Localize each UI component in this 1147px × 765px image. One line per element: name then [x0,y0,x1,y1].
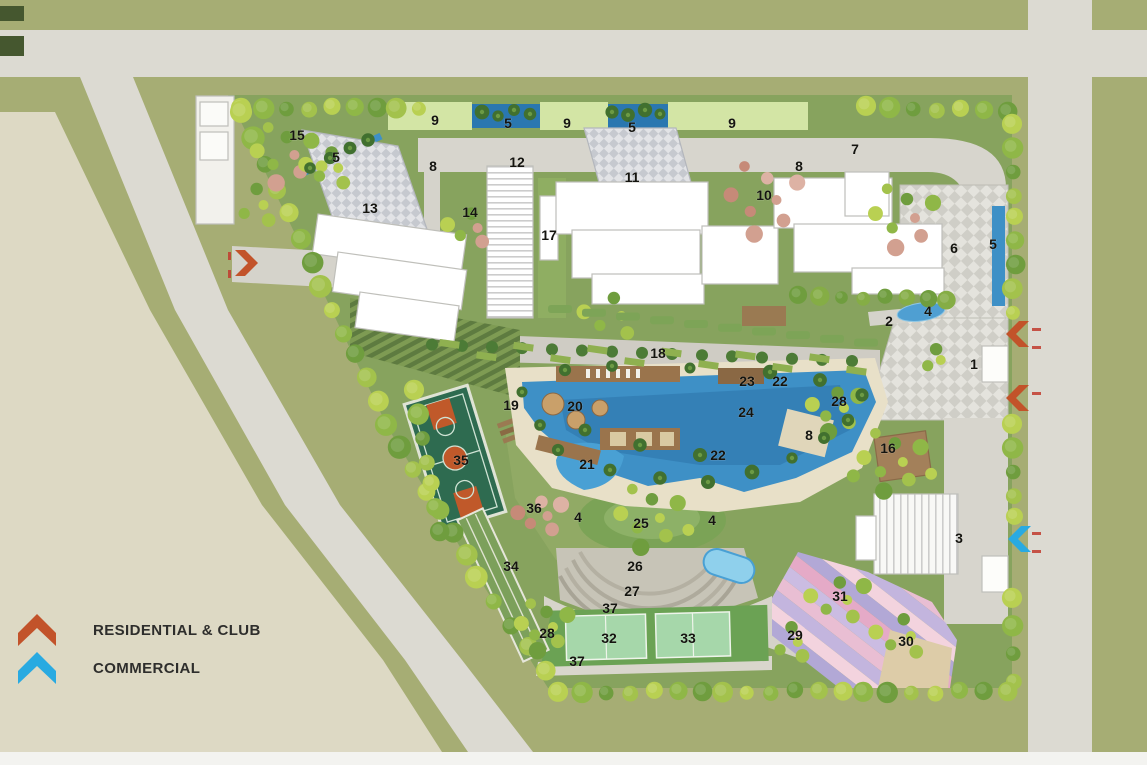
building-3 [874,494,958,574]
top-road [0,30,1147,77]
marker-33: 33 [680,630,696,646]
gatehouse [200,102,228,126]
marker-10: 10 [756,187,772,203]
planting-bed [0,36,24,56]
palm-tree [636,347,648,359]
marker-35: 35 [453,452,469,468]
marker-8: 8 [805,427,813,443]
palm-tree [486,341,498,353]
marker-18: 18 [650,345,666,361]
marker-19: 19 [503,397,519,413]
marker-15: 15 [289,127,305,143]
marker-14: 14 [462,204,478,220]
palm-tree [576,345,588,357]
gatehouse-east-1 [982,346,1008,382]
marker-29: 29 [787,627,803,643]
marker-4: 4 [708,512,716,528]
marker-37: 37 [569,653,585,669]
marker-5: 5 [628,119,636,135]
marker-12: 12 [509,154,525,170]
marker-32: 32 [601,630,617,646]
float-island [542,393,564,415]
marker-20: 20 [567,398,583,414]
residential-chevron-icon [18,614,56,646]
lawn-strip [668,102,808,130]
marker-22: 22 [710,447,726,463]
marker-8: 8 [429,158,437,174]
lawn-strip [540,102,608,130]
page-margin [0,752,1147,765]
building-3-wing [856,516,876,560]
marker-13: 13 [362,200,378,216]
marker-7: 7 [851,141,859,157]
marker-4: 4 [924,303,932,319]
marker-2: 2 [885,313,893,329]
gatehouse-east-2 [982,556,1008,592]
marker-25: 25 [633,515,649,531]
marker-16: 16 [880,440,896,456]
marker-5: 5 [989,236,997,252]
legend: RESIDENTIAL & CLUB COMMERCIAL [18,612,261,688]
palm-tree [546,343,558,355]
marker-9: 9 [728,115,736,131]
marker-22: 22 [772,373,788,389]
site-plan: 1234445555678889991011121314151617181920… [0,0,1147,765]
deck-mat [660,432,674,446]
marker-26: 26 [627,558,643,574]
marker-9: 9 [431,112,439,128]
marker-28: 28 [831,393,847,409]
marker-3: 3 [955,530,963,546]
legend-item-residential: RESIDENTIAL & CLUB [18,612,261,648]
marker-31: 31 [832,588,848,604]
legend-item-commercial: COMMERCIAL [18,650,261,686]
palm-tree [756,352,768,364]
marker-4: 4 [574,509,582,525]
marker-28: 28 [539,625,555,641]
marker-27: 27 [624,583,640,599]
marker-17: 17 [541,227,557,243]
marker-5: 5 [504,115,512,131]
gatehouse [200,132,228,160]
marker-9: 9 [563,115,571,131]
palm-tree [426,339,438,351]
marker-37: 37 [602,600,618,616]
planting-bed [0,6,24,21]
commercial-chevron-icon [18,652,56,684]
pergola-courtyard [742,306,786,326]
right-road [1028,0,1092,752]
marker-24: 24 [738,404,754,420]
building-12 [487,166,533,318]
marker-23: 23 [739,373,755,389]
marker-30: 30 [898,633,914,649]
marker-8: 8 [795,158,803,174]
marker-1: 1 [970,356,978,372]
palm-tree [606,346,618,358]
marker-5: 5 [332,149,340,165]
tower-link [702,226,778,284]
marker-6: 6 [950,240,958,256]
legend-label-residential: RESIDENTIAL & CLUB [93,622,261,639]
marker-21: 21 [579,456,595,472]
marker-36: 36 [526,500,542,516]
float-island [592,400,608,416]
palm-tree [696,349,708,361]
deck-mat [610,432,626,446]
palm-tree [846,355,858,367]
marker-34: 34 [503,558,519,574]
marker-11: 11 [625,169,640,185]
legend-label-commercial: COMMERCIAL [93,660,200,677]
palm-tree [786,353,798,365]
